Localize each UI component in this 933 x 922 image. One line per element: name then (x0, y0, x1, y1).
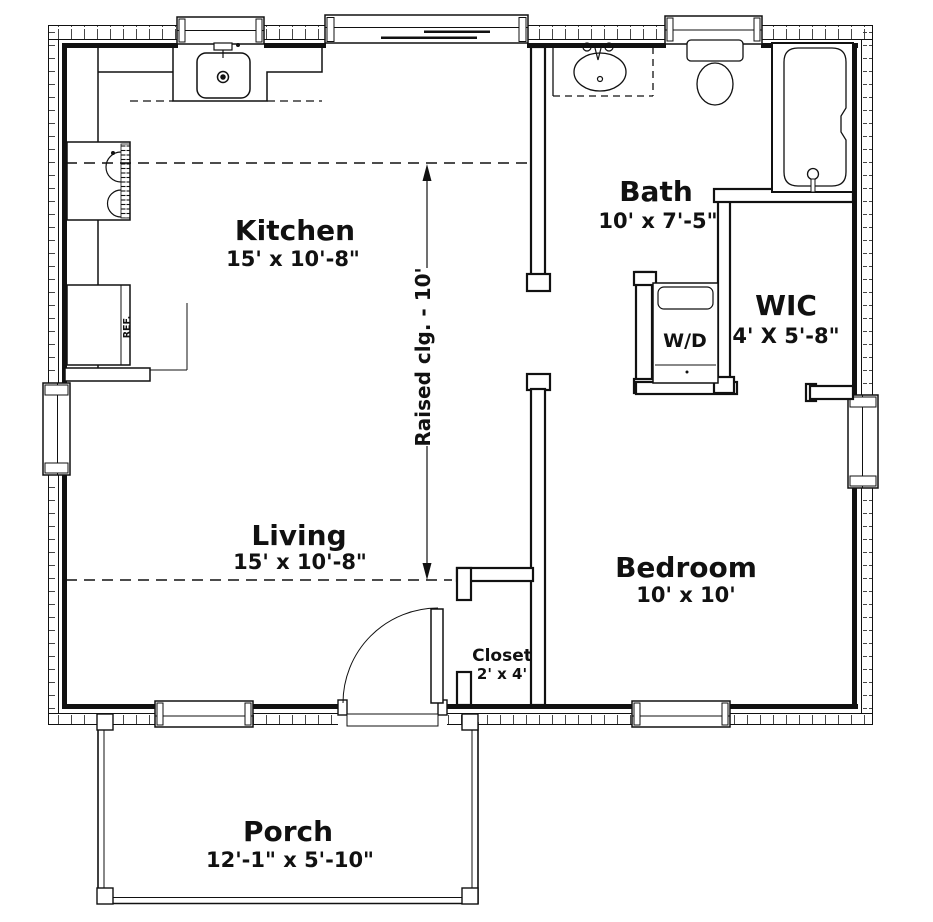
floor-plan-page: REF. W/D Raised clg. - 10' (0, 0, 933, 922)
floor-plan-drawing: REF. W/D Raised clg. - 10' (0, 0, 933, 922)
bath-vanity (553, 43, 653, 96)
side-window-right (848, 395, 878, 488)
kitchen-label: Kitchen (235, 214, 355, 247)
picture-window (325, 15, 528, 49)
front-door (338, 608, 447, 727)
wic-label: WIC (755, 289, 817, 322)
range-stove (67, 142, 130, 220)
refrigerator-label: REF. (122, 316, 133, 339)
bedroom-window (632, 699, 730, 727)
closet-dims: 2' x 4' (477, 665, 527, 683)
door-swing-arc (343, 608, 438, 703)
bath-dims: 10' x 7'-5" (598, 209, 717, 233)
refrigerator: REF. (67, 285, 133, 365)
washer-dryer-label: W/D (663, 330, 707, 352)
raised-ceiling-label: Raised clg. - 10' (411, 267, 435, 446)
kitchen-dims: 15' x 10'-8" (226, 247, 360, 271)
exterior-walls (48, 25, 873, 725)
room-labels: Kitchen 15' x 10'-8" Bath 10' x 7'-5" WI… (206, 175, 840, 872)
side-window-left (43, 383, 70, 475)
porch-dims: 12'-1" x 5'-10" (206, 848, 374, 872)
closet-label: Closet (472, 646, 532, 666)
door-leaf (431, 609, 443, 703)
living-window (155, 699, 253, 727)
living-label: Living (251, 519, 346, 552)
bedroom-dims: 10' x 10' (636, 583, 735, 607)
toilet (687, 40, 743, 105)
porch-deck (97, 714, 478, 904)
washer-dryer-unit: W/D (653, 283, 718, 383)
wic-dims: 4' X 5'-8" (732, 324, 839, 348)
kitchen-sink (197, 43, 250, 98)
bath-label: Bath (619, 175, 693, 208)
living-dims: 15' x 10'-8" (233, 550, 367, 574)
bedroom-label: Bedroom (615, 551, 757, 584)
porch-label: Porch (243, 815, 333, 848)
bathtub (772, 43, 853, 192)
